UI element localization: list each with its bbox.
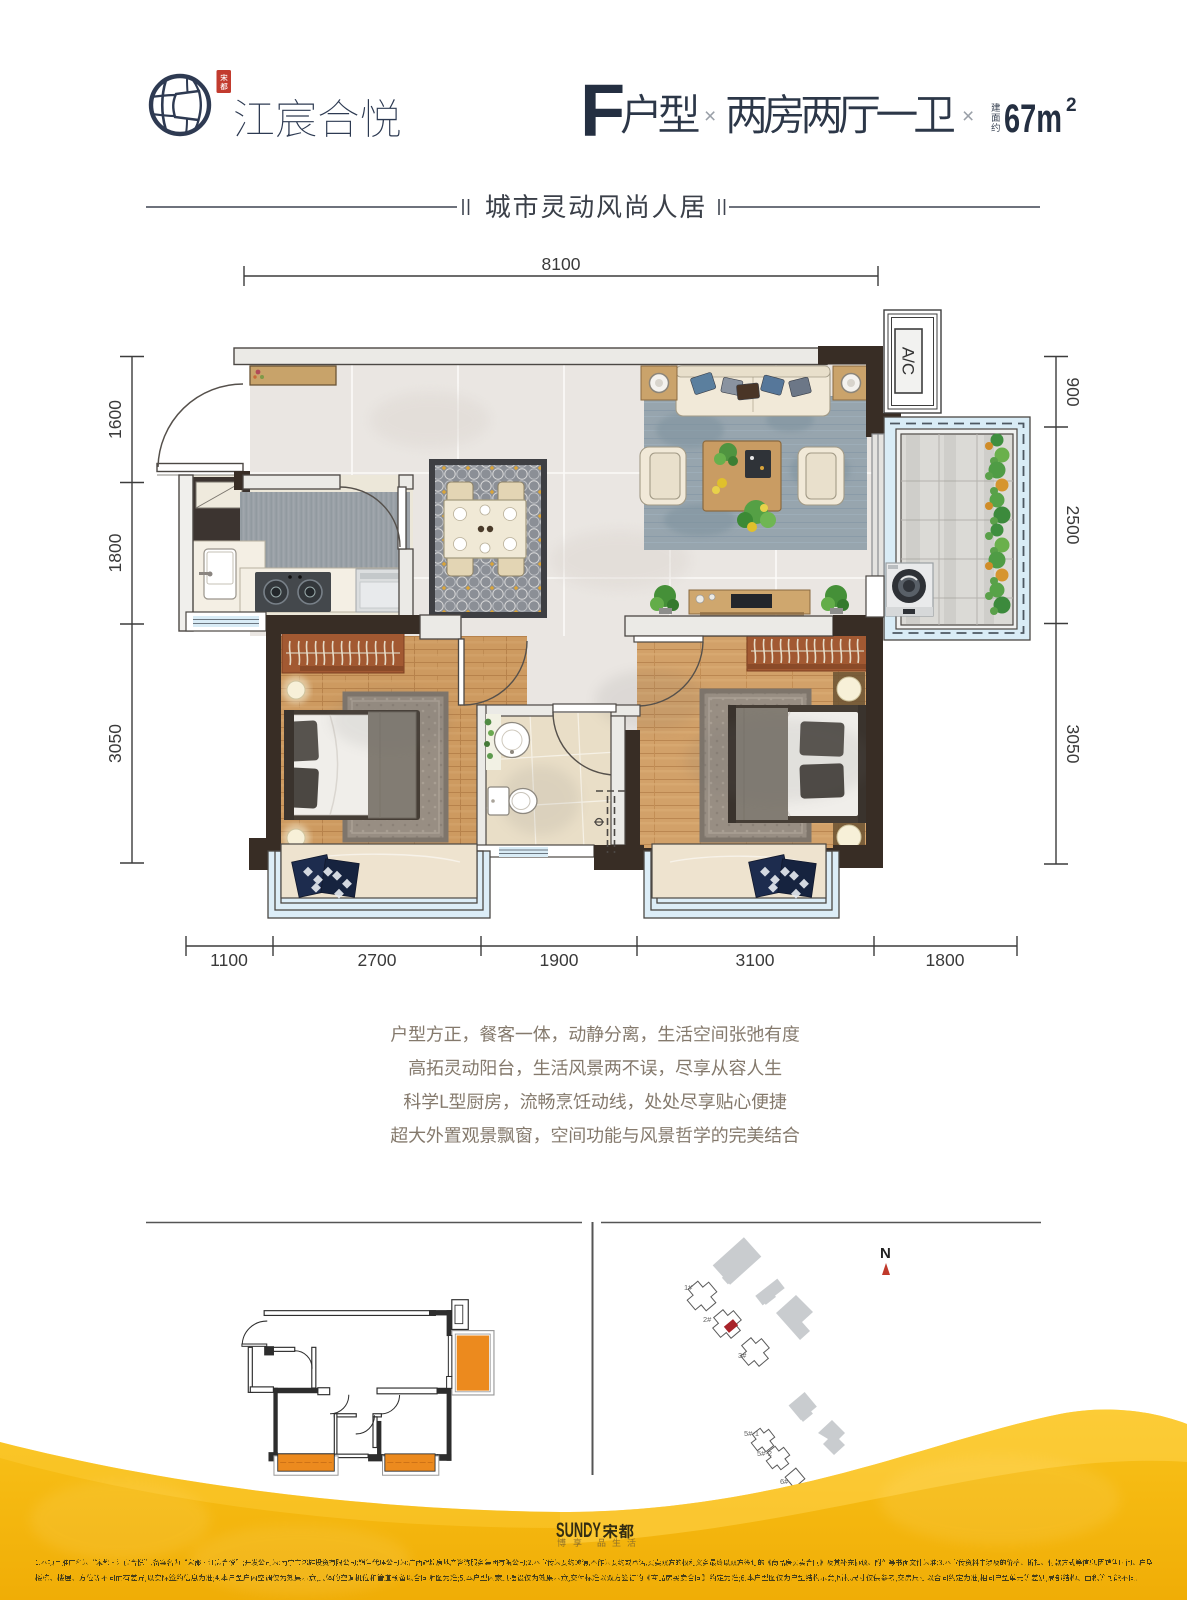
svg-text:2: 2 xyxy=(1066,95,1077,116)
svg-text:900: 900 xyxy=(1063,377,1083,406)
svg-text:F: F xyxy=(580,69,625,152)
svg-text:1900: 1900 xyxy=(540,950,579,970)
svg-text:5#-1: 5#-1 xyxy=(744,1429,759,1438)
svg-text:×: × xyxy=(704,105,716,128)
svg-text:1600: 1600 xyxy=(105,400,125,439)
svg-text:2500: 2500 xyxy=(1063,506,1083,545)
svg-text:1100: 1100 xyxy=(210,950,248,970)
svg-text:3#: 3# xyxy=(738,1351,747,1360)
svg-text:5#-2: 5#-2 xyxy=(757,1449,772,1458)
svg-text:67m: 67m xyxy=(1004,97,1062,141)
svg-text:1#: 1# xyxy=(684,1283,693,1292)
svg-text:3050: 3050 xyxy=(1063,725,1083,764)
svg-text:A/C: A/C xyxy=(899,347,918,375)
svg-text:1800: 1800 xyxy=(926,950,965,970)
svg-text:3100: 3100 xyxy=(736,950,775,970)
svg-text:1800: 1800 xyxy=(105,533,125,572)
svg-text:×: × xyxy=(962,105,974,128)
svg-text:8100: 8100 xyxy=(542,254,581,274)
svg-text:6#: 6# xyxy=(780,1477,789,1486)
svg-text:N: N xyxy=(880,1245,891,1262)
svg-text:3050: 3050 xyxy=(105,724,125,763)
svg-text:2700: 2700 xyxy=(358,950,397,970)
svg-text:2#: 2# xyxy=(703,1315,712,1324)
